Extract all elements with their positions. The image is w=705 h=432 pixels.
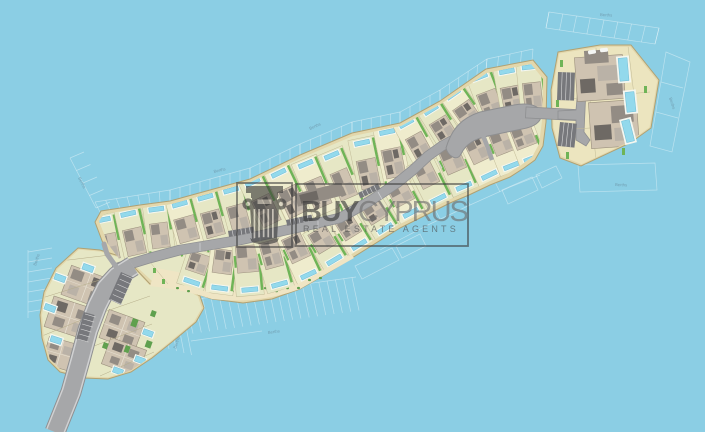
svg-text:REAL ESTATE AGENTS: REAL ESTATE AGENTS [303, 224, 459, 234]
svg-text:Berths: Berths [615, 182, 627, 187]
svg-text:Berths: Berths [600, 12, 612, 18]
